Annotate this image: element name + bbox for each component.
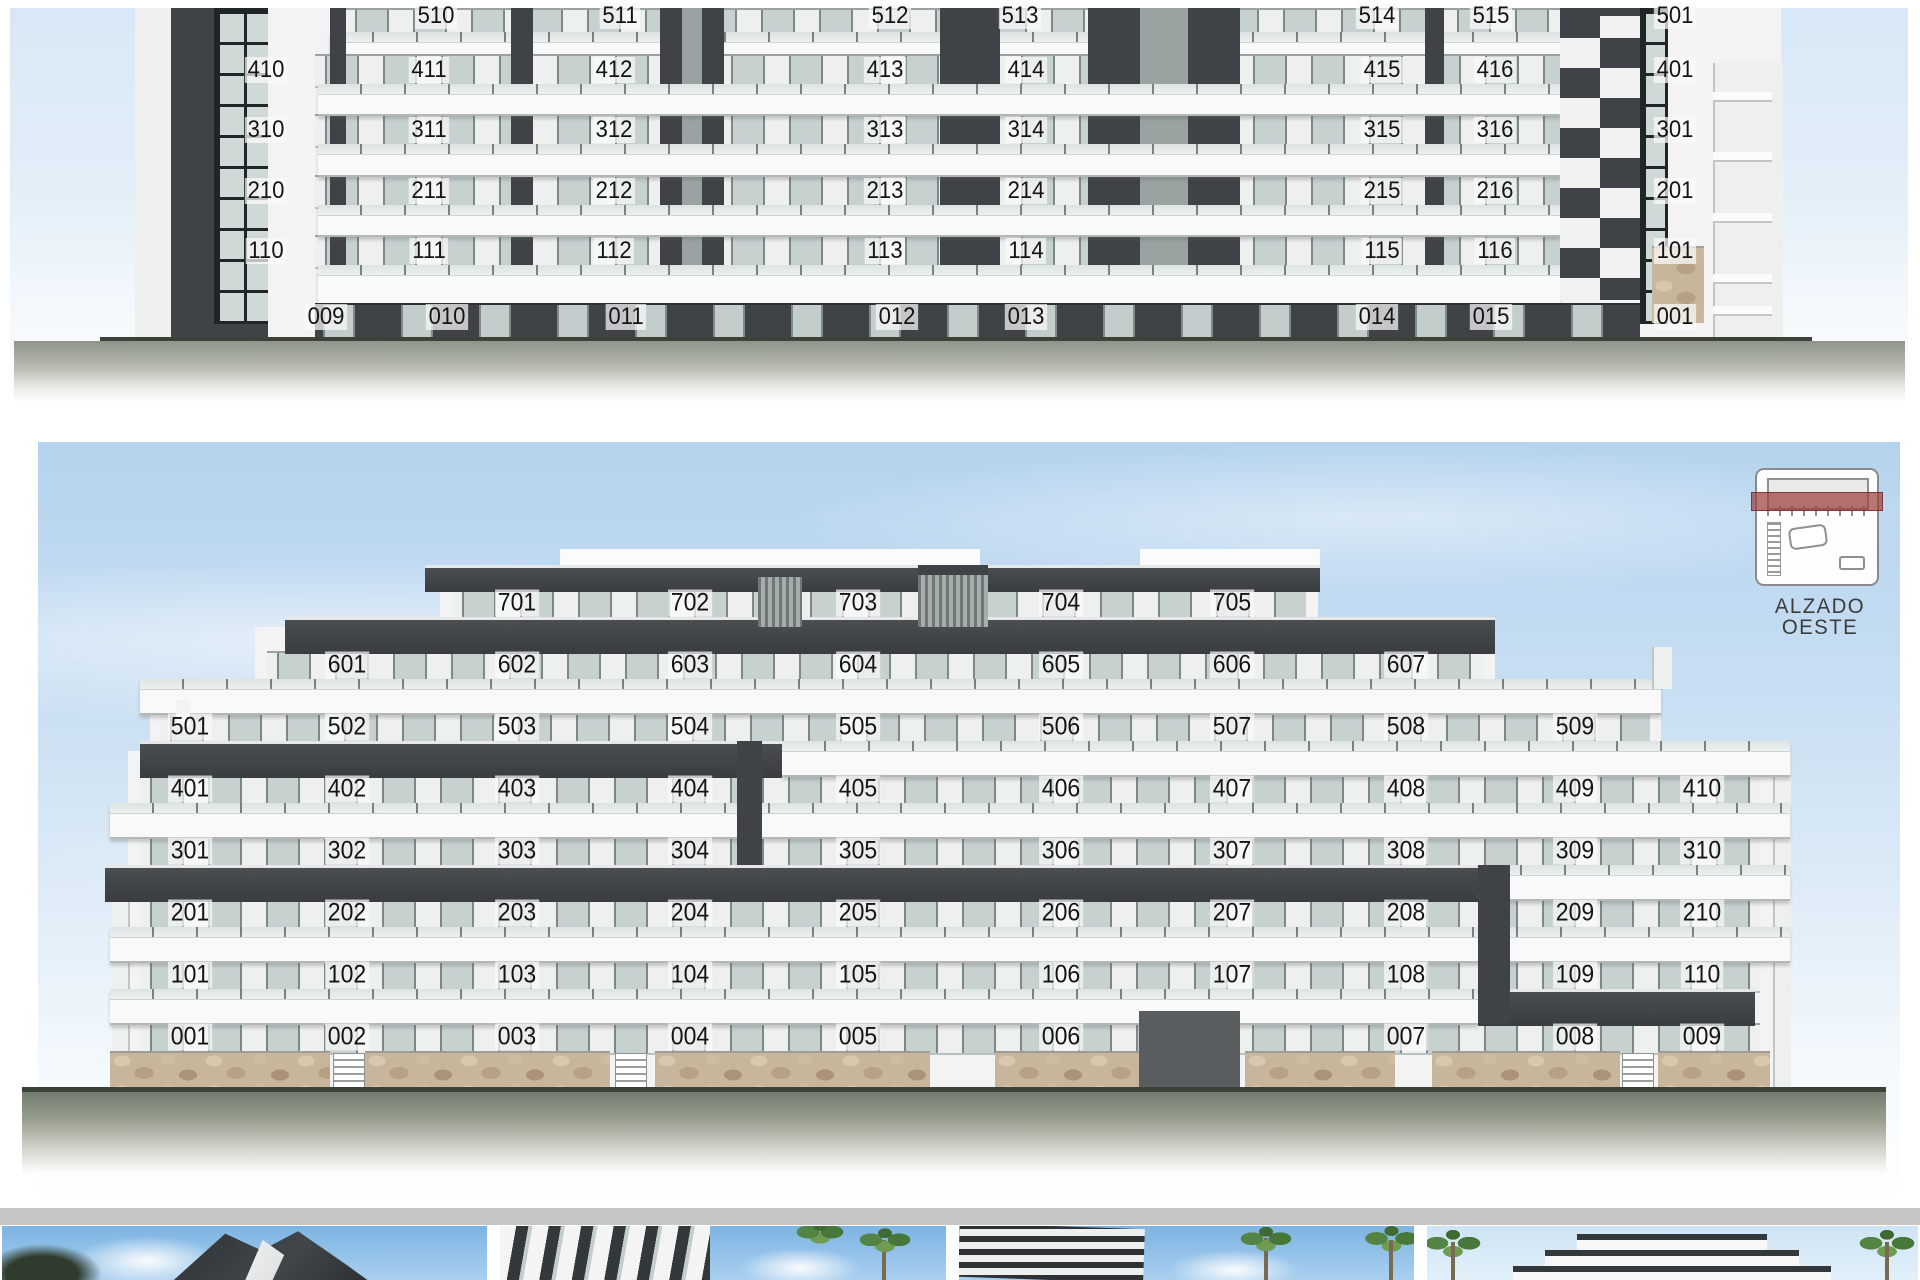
stone-plinth [655,1051,930,1089]
unit-label: 401 [168,776,212,803]
floor7-louver [758,577,802,627]
unit-label: 402 [325,776,369,803]
unit-label: 403 [495,776,539,803]
unit-label: 101 [168,962,212,989]
entry-stairs [1622,1053,1654,1089]
unit-label: 206 [1039,900,1083,927]
dark-connector [1478,865,1510,1023]
top-ground-floor [315,303,1640,341]
unit-label: 104 [668,962,712,989]
keyplan-highlight-band [1751,492,1883,511]
balcony-railing [110,989,1478,1000]
footer-divider-band [0,1208,1920,1225]
unit-label: 505 [836,714,880,741]
unit-label: 209 [1553,900,1597,927]
unit-label: 415 [1361,57,1403,83]
unit-label: 606 [1210,652,1254,679]
west-right-pilaster [1773,751,1791,1089]
unit-label: 507 [1210,714,1254,741]
unit-label: 308 [1384,838,1428,865]
unit-label: 110 [246,238,287,264]
unit-label: 205 [836,900,880,927]
unit-label: 015 [1470,304,1512,330]
unit-label: 102 [325,962,369,989]
unit-label: 110 [1681,962,1723,989]
unit-label: 310 [1680,838,1724,865]
unit-label: 007 [1384,1024,1428,1051]
floor1-parapet-right [1478,989,1755,1026]
top-checker-left [1560,8,1600,300]
palm-icon [1427,1226,1493,1274]
thumbnail-render-3[interactable] [959,1226,1414,1280]
unit-label: 101 [1654,238,1696,264]
balcony-railing [110,803,1790,814]
side-balcony-slab [1713,92,1772,102]
unit-label: 301 [1654,117,1696,143]
unit-label: 208 [1384,900,1428,927]
palm-trunk-icon [1451,1242,1455,1280]
unit-label: 413 [864,57,906,83]
unit-label: 501 [1654,3,1696,29]
floor7-louver [918,575,988,627]
building-shape [500,1226,710,1280]
unit-label: 304 [668,838,712,865]
top-right-wing [1713,63,1783,339]
unit-label: 410 [245,57,287,83]
unit-label: 509 [1553,714,1597,741]
unit-label: 215 [1361,178,1403,204]
palm-icon [1231,1226,1301,1264]
unit-label: 303 [495,838,539,865]
unit-label: 416 [1474,57,1516,83]
balcony-railing [318,84,1560,95]
unit-label: 514 [1356,3,1398,29]
thumbnail-render-1[interactable] [2,1226,487,1280]
balcony-railing [140,679,1661,690]
top-left-pilaster [135,8,173,339]
palm-trunk-icon [1885,1242,1889,1280]
building-lower-tier [1513,1266,1831,1280]
balcony-railing [1478,865,1790,876]
keyplan-car-shape [1839,556,1865,570]
unit-label: 705 [1210,590,1254,617]
unit-label: 511 [600,3,641,29]
unit-label: 704 [1039,590,1083,617]
unit-label: 201 [1654,178,1696,204]
unit-label: 408 [1384,776,1428,803]
west-ground [22,1092,1886,1174]
unit-label: 212 [593,178,635,204]
top-checker-right [1600,8,1640,300]
unit-label: 411 [409,57,450,83]
unit-label: 210 [245,178,287,204]
unit-label: 409 [1553,776,1597,803]
unit-label: 407 [1210,776,1254,803]
unit-label: 508 [1384,714,1428,741]
unit-label: 703 [836,590,880,617]
unit-label: 313 [864,117,906,143]
unit-label: 312 [593,117,635,143]
unit-label: 602 [495,652,539,679]
stone-plinth [1658,1051,1770,1089]
stone-plinth [365,1051,610,1089]
unit-label: 203 [495,900,539,927]
unit-label: 604 [836,652,880,679]
unit-label: 309 [1553,838,1597,865]
entry-stairs [333,1053,365,1089]
unit-label: 410 [1680,776,1724,803]
balcony-railing [782,741,1790,752]
unit-label: 314 [1005,117,1047,143]
unit-label: 316 [1474,117,1516,143]
stone-plinth [995,1051,1139,1089]
unit-label: 003 [495,1024,539,1051]
unit-label: 005 [836,1024,880,1051]
unit-label: 412 [593,57,635,83]
unit-label: 301 [168,838,212,865]
unit-label: 302 [325,838,369,865]
unit-label: 512 [869,3,911,29]
unit-label: 404 [668,776,712,803]
palm-icon [1847,1226,1918,1274]
unit-label: 111 [409,238,448,264]
thumbnail-render-4[interactable] [1427,1226,1918,1280]
keyplan-pool-shape [1788,523,1829,550]
unit-label: 414 [1005,57,1047,83]
unit-label: 006 [1039,1024,1083,1051]
unit-label: 009 [1680,1024,1724,1051]
floor3-parapet-left [105,865,1478,902]
top-ground [14,341,1905,402]
west-elevation-label: ALZADO OESTE [1739,596,1902,620]
unit-label: 315 [1361,117,1403,143]
unit-label: 201 [168,900,212,927]
unit-label: 501 [168,714,212,741]
balcony-railing [110,927,1790,938]
unit-label: 113 [865,238,906,264]
unit-label: 310 [245,117,287,143]
stone-plinth [1432,1051,1620,1089]
palm-icon [850,1226,920,1264]
balcony-railing [318,144,1560,155]
unit-label: 213 [864,178,906,204]
unit-label: 214 [1005,178,1047,204]
unit-label: 515 [1470,3,1512,29]
unit-label: 506 [1039,714,1083,741]
unit-label: 107 [1210,962,1254,989]
unit-label: 702 [668,590,712,617]
elevation-sheet: ALZADO OESTE 510511512513514515501410411… [0,0,1920,1280]
tree-icon [2,1244,102,1280]
unit-label: 001 [1654,304,1696,330]
unit-label: 605 [1039,652,1083,679]
unit-label: 106 [1039,962,1083,989]
unit-label: 103 [495,962,539,989]
unit-label: 011 [606,304,647,330]
unit-label: 405 [836,776,880,803]
unit-label: 401 [1654,57,1696,83]
unit-label: 306 [1039,838,1083,865]
side-balcony-slab [1713,306,1772,316]
unit-label: 202 [325,900,369,927]
unit-label: 510 [415,3,457,29]
stone-plinth [110,1051,330,1089]
keyplan-hatch-strip [1767,522,1781,576]
balcony-railing [318,265,1560,276]
keyplan-icon [1755,468,1879,586]
unit-label: 204 [668,900,712,927]
unit-label: 004 [668,1024,712,1051]
unit-label: 115 [1362,238,1403,264]
unit-label: 406 [1039,776,1083,803]
unit-label: 601 [325,652,369,679]
unit-label: 116 [1475,238,1516,264]
unit-label: 008 [1553,1024,1597,1051]
building-shape [959,1226,1145,1280]
palm-icon [790,1226,850,1254]
unit-label: 607 [1384,652,1428,679]
unit-label: 502 [325,714,369,741]
unit-label: 114 [1006,238,1047,264]
unit-label: 013 [1005,304,1047,330]
unit-label: 001 [168,1024,212,1051]
unit-label: 504 [668,714,712,741]
unit-label: 207 [1210,900,1254,927]
unit-label: 513 [999,3,1041,29]
side-balcony-slab [1713,213,1772,223]
unit-label: 009 [305,304,347,330]
dark-entry [1139,1011,1240,1089]
entry-stairs [615,1053,647,1089]
unit-label: 211 [409,178,450,204]
roof-chimney [1652,647,1672,689]
thumbnail-render-2[interactable] [500,1226,946,1280]
unit-label: 010 [426,304,468,330]
louver-cap [918,565,988,575]
unit-label: 012 [876,304,918,330]
unit-label: 014 [1356,304,1398,330]
unit-label: 210 [1680,900,1724,927]
unit-label: 503 [495,714,539,741]
stone-plinth [1245,1051,1395,1089]
palm-icon [1354,1226,1414,1266]
palm-trunk-icon [1389,1240,1393,1280]
side-balcony-slab [1713,152,1772,162]
unit-label: 105 [836,962,880,989]
floor5-parapet-left [140,741,782,778]
unit-label: 109 [1553,962,1597,989]
floor7-parapet [285,617,1495,654]
step-edge-pier [737,741,762,865]
side-balcony-slab [1713,274,1772,284]
unit-label: 112 [594,238,635,264]
unit-label: 216 [1474,178,1516,204]
unit-label: 311 [409,117,450,143]
unit-label: 108 [1384,962,1428,989]
unit-label: 305 [836,838,880,865]
unit-label: 002 [325,1024,369,1051]
unit-label: 307 [1210,838,1254,865]
unit-label: 603 [668,652,712,679]
unit-label: 701 [495,590,539,617]
balcony-railing [318,205,1560,216]
